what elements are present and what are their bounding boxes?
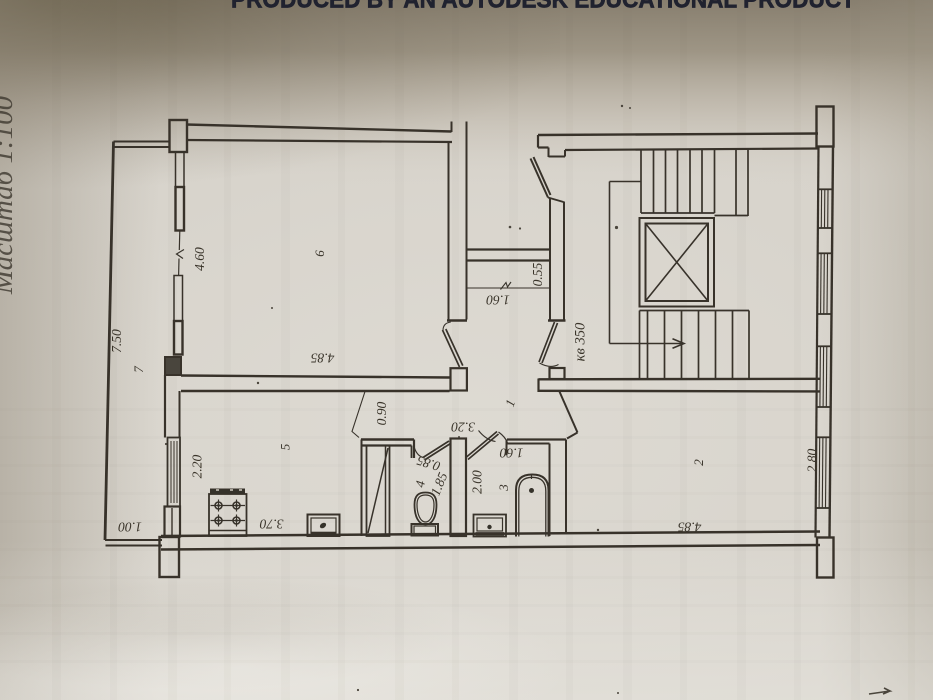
svg-text:3: 3 xyxy=(496,484,511,492)
svg-text:5: 5 xyxy=(278,443,293,450)
svg-text:7.50: 7.50 xyxy=(109,329,124,353)
svg-text:1.00: 1.00 xyxy=(118,520,142,535)
svg-text:2: 2 xyxy=(691,459,706,466)
svg-text:3.70: 3.70 xyxy=(259,517,284,532)
svg-text:7: 7 xyxy=(131,366,146,373)
svg-text:0.90: 0.90 xyxy=(374,401,389,425)
svg-text:2.00: 2.00 xyxy=(470,470,485,494)
svg-text:3.20: 3.20 xyxy=(451,420,476,435)
svg-text:4.85: 4.85 xyxy=(310,351,334,366)
svg-text:0.55: 0.55 xyxy=(530,262,545,286)
svg-text:PRODUCED BY AN AUTODESK EDUCAT: PRODUCED BY AN AUTODESK EDUCATIONAL PROD… xyxy=(231,0,855,14)
svg-text:1.60: 1.60 xyxy=(486,293,510,308)
svg-text:4.60: 4.60 xyxy=(192,247,207,271)
svg-text:1.60: 1.60 xyxy=(499,446,523,461)
svg-text:2.80: 2.80 xyxy=(805,448,820,472)
svg-text:6: 6 xyxy=(312,250,327,257)
svg-text:Масштаб 1:100: Масштаб 1:100 xyxy=(0,95,19,295)
svg-text:2.20: 2.20 xyxy=(190,454,205,478)
svg-text:кв 350: кв 350 xyxy=(573,322,589,361)
svg-text:4.85: 4.85 xyxy=(677,520,701,535)
